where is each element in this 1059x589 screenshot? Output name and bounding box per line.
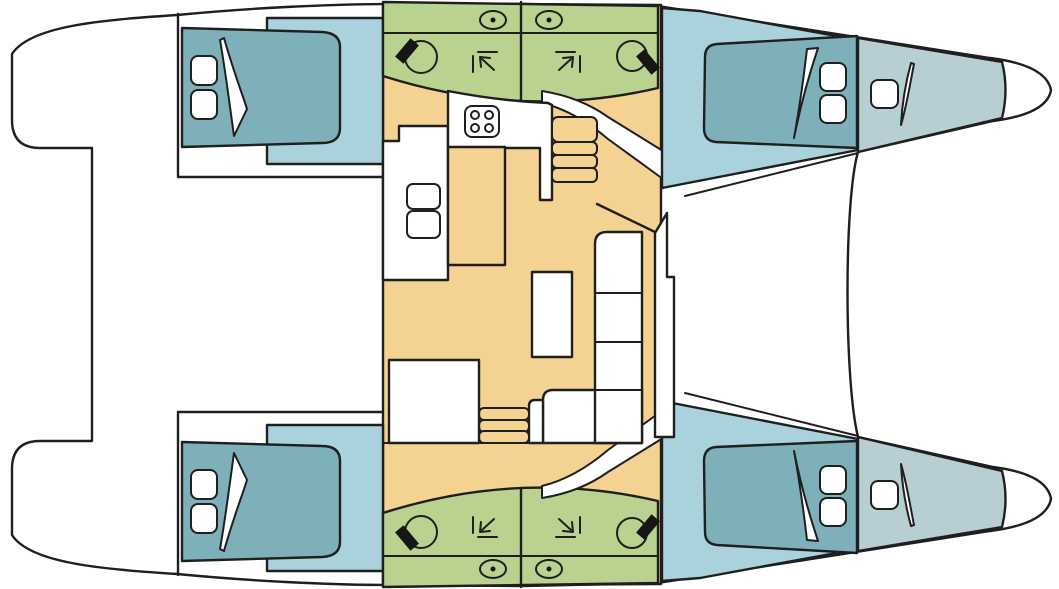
stair-tread (552, 142, 597, 155)
stair-tread (552, 168, 597, 182)
floor-plan-svg (0, 0, 1059, 589)
stairs-starboard (479, 408, 529, 443)
pillow (191, 90, 217, 119)
galley-island (448, 147, 505, 265)
salon-table (532, 272, 572, 357)
catamaran-floor-plan (0, 0, 1059, 589)
stairs-port (552, 117, 597, 182)
galley-basin (407, 184, 440, 209)
pillow (820, 95, 846, 123)
stair-tread (479, 408, 529, 420)
forepeak (858, 38, 1006, 152)
stair-tread (479, 431, 529, 443)
double-bed (182, 28, 340, 147)
sofa-end-step (529, 400, 543, 443)
sofa-side-bench (595, 232, 642, 443)
pillow (871, 80, 898, 108)
aft-counter (389, 360, 479, 443)
galley-basin (407, 211, 440, 238)
pillow (820, 63, 846, 91)
stair-tread (552, 155, 597, 168)
toilet-dot (491, 18, 496, 23)
stair-tread (552, 117, 597, 142)
stove-icon (465, 106, 499, 137)
pillow (191, 56, 217, 85)
heads (383, 2, 660, 101)
toilet-dot (547, 18, 552, 23)
